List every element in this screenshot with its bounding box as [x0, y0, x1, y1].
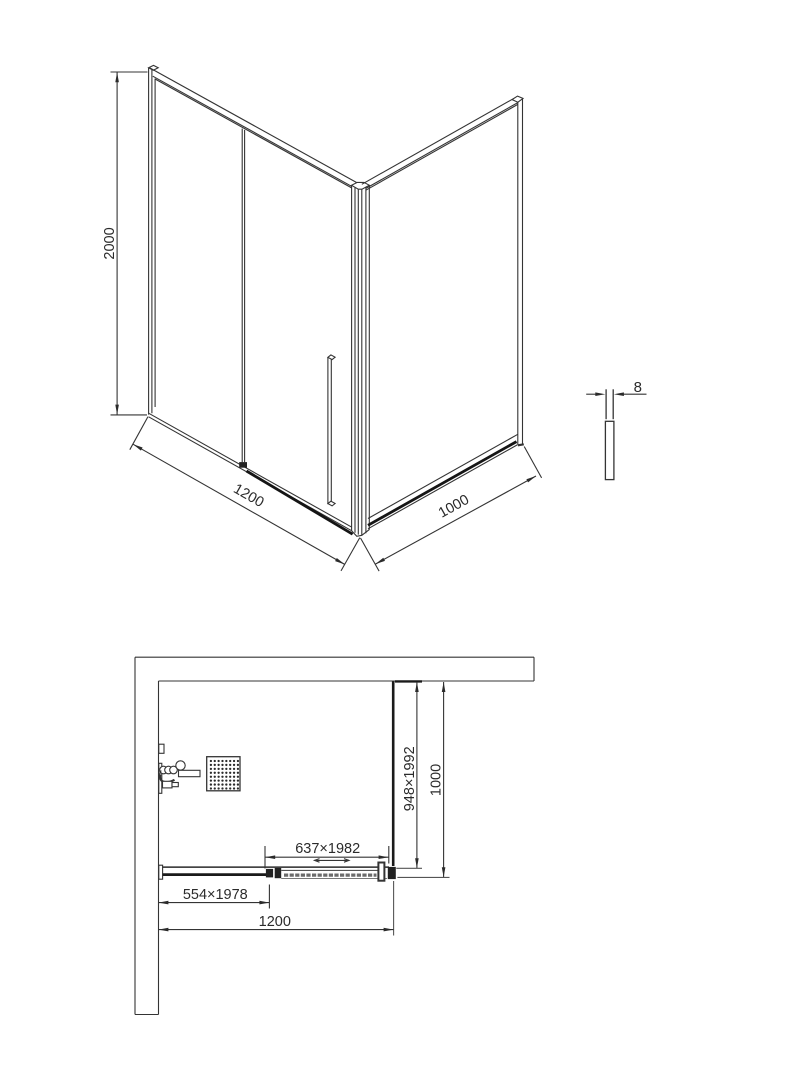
svg-text:1000: 1000 — [436, 492, 472, 522]
svg-text:948×1992: 948×1992 — [402, 746, 418, 811]
svg-text:2000: 2000 — [102, 227, 118, 259]
svg-text:1200: 1200 — [259, 914, 291, 930]
svg-text:1200: 1200 — [230, 481, 266, 511]
svg-text:637×1982: 637×1982 — [295, 841, 360, 857]
svg-text:8: 8 — [634, 379, 642, 396]
svg-text:554×1978: 554×1978 — [183, 887, 248, 903]
svg-text:1000: 1000 — [429, 764, 445, 796]
